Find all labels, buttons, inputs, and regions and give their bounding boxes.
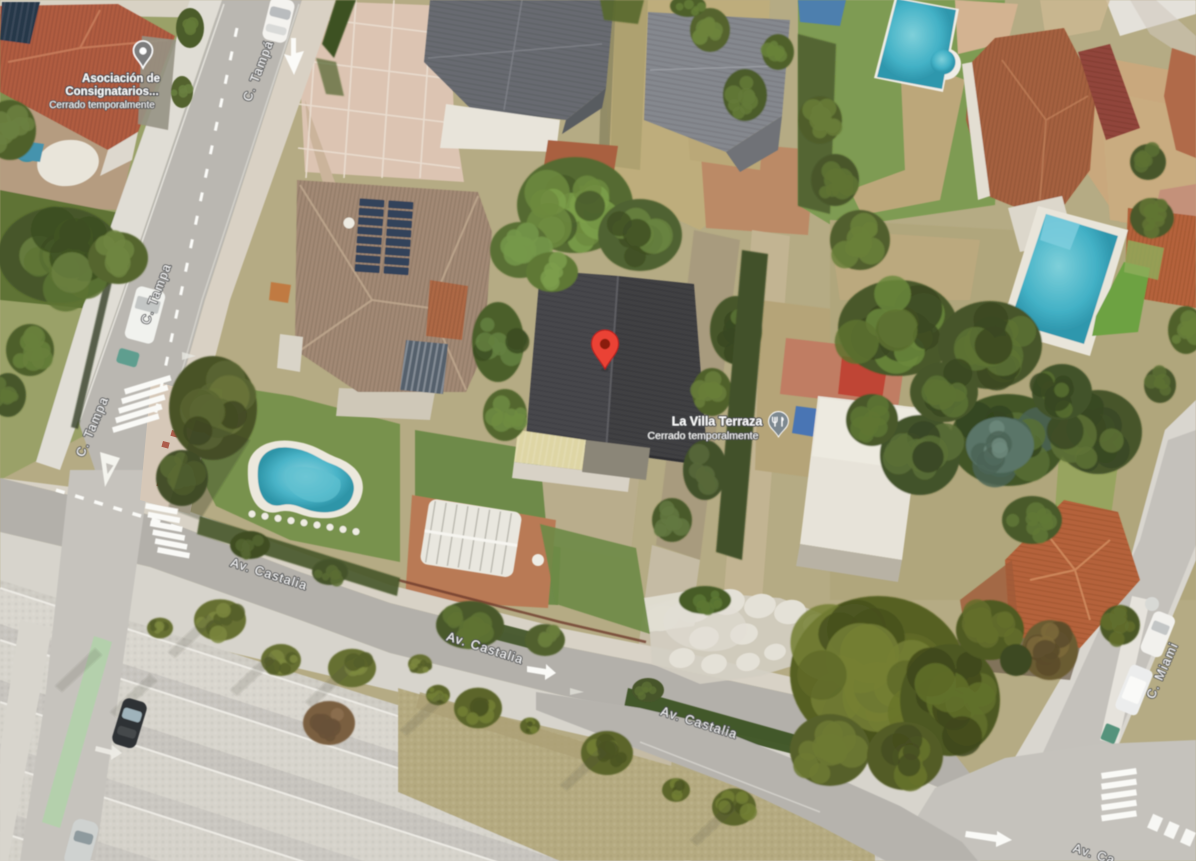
svg-text:Cerrado temporalmente: Cerrado temporalmente — [49, 100, 155, 111]
svg-text:Cerrado temporalmente: Cerrado temporalmente — [648, 430, 759, 442]
svg-text:La Villa Terraza: La Villa Terraza — [672, 415, 764, 429]
svg-text:Consignatarios...: Consignatarios... — [65, 86, 158, 98]
svg-text:Asociación de: Asociación de — [82, 73, 160, 85]
